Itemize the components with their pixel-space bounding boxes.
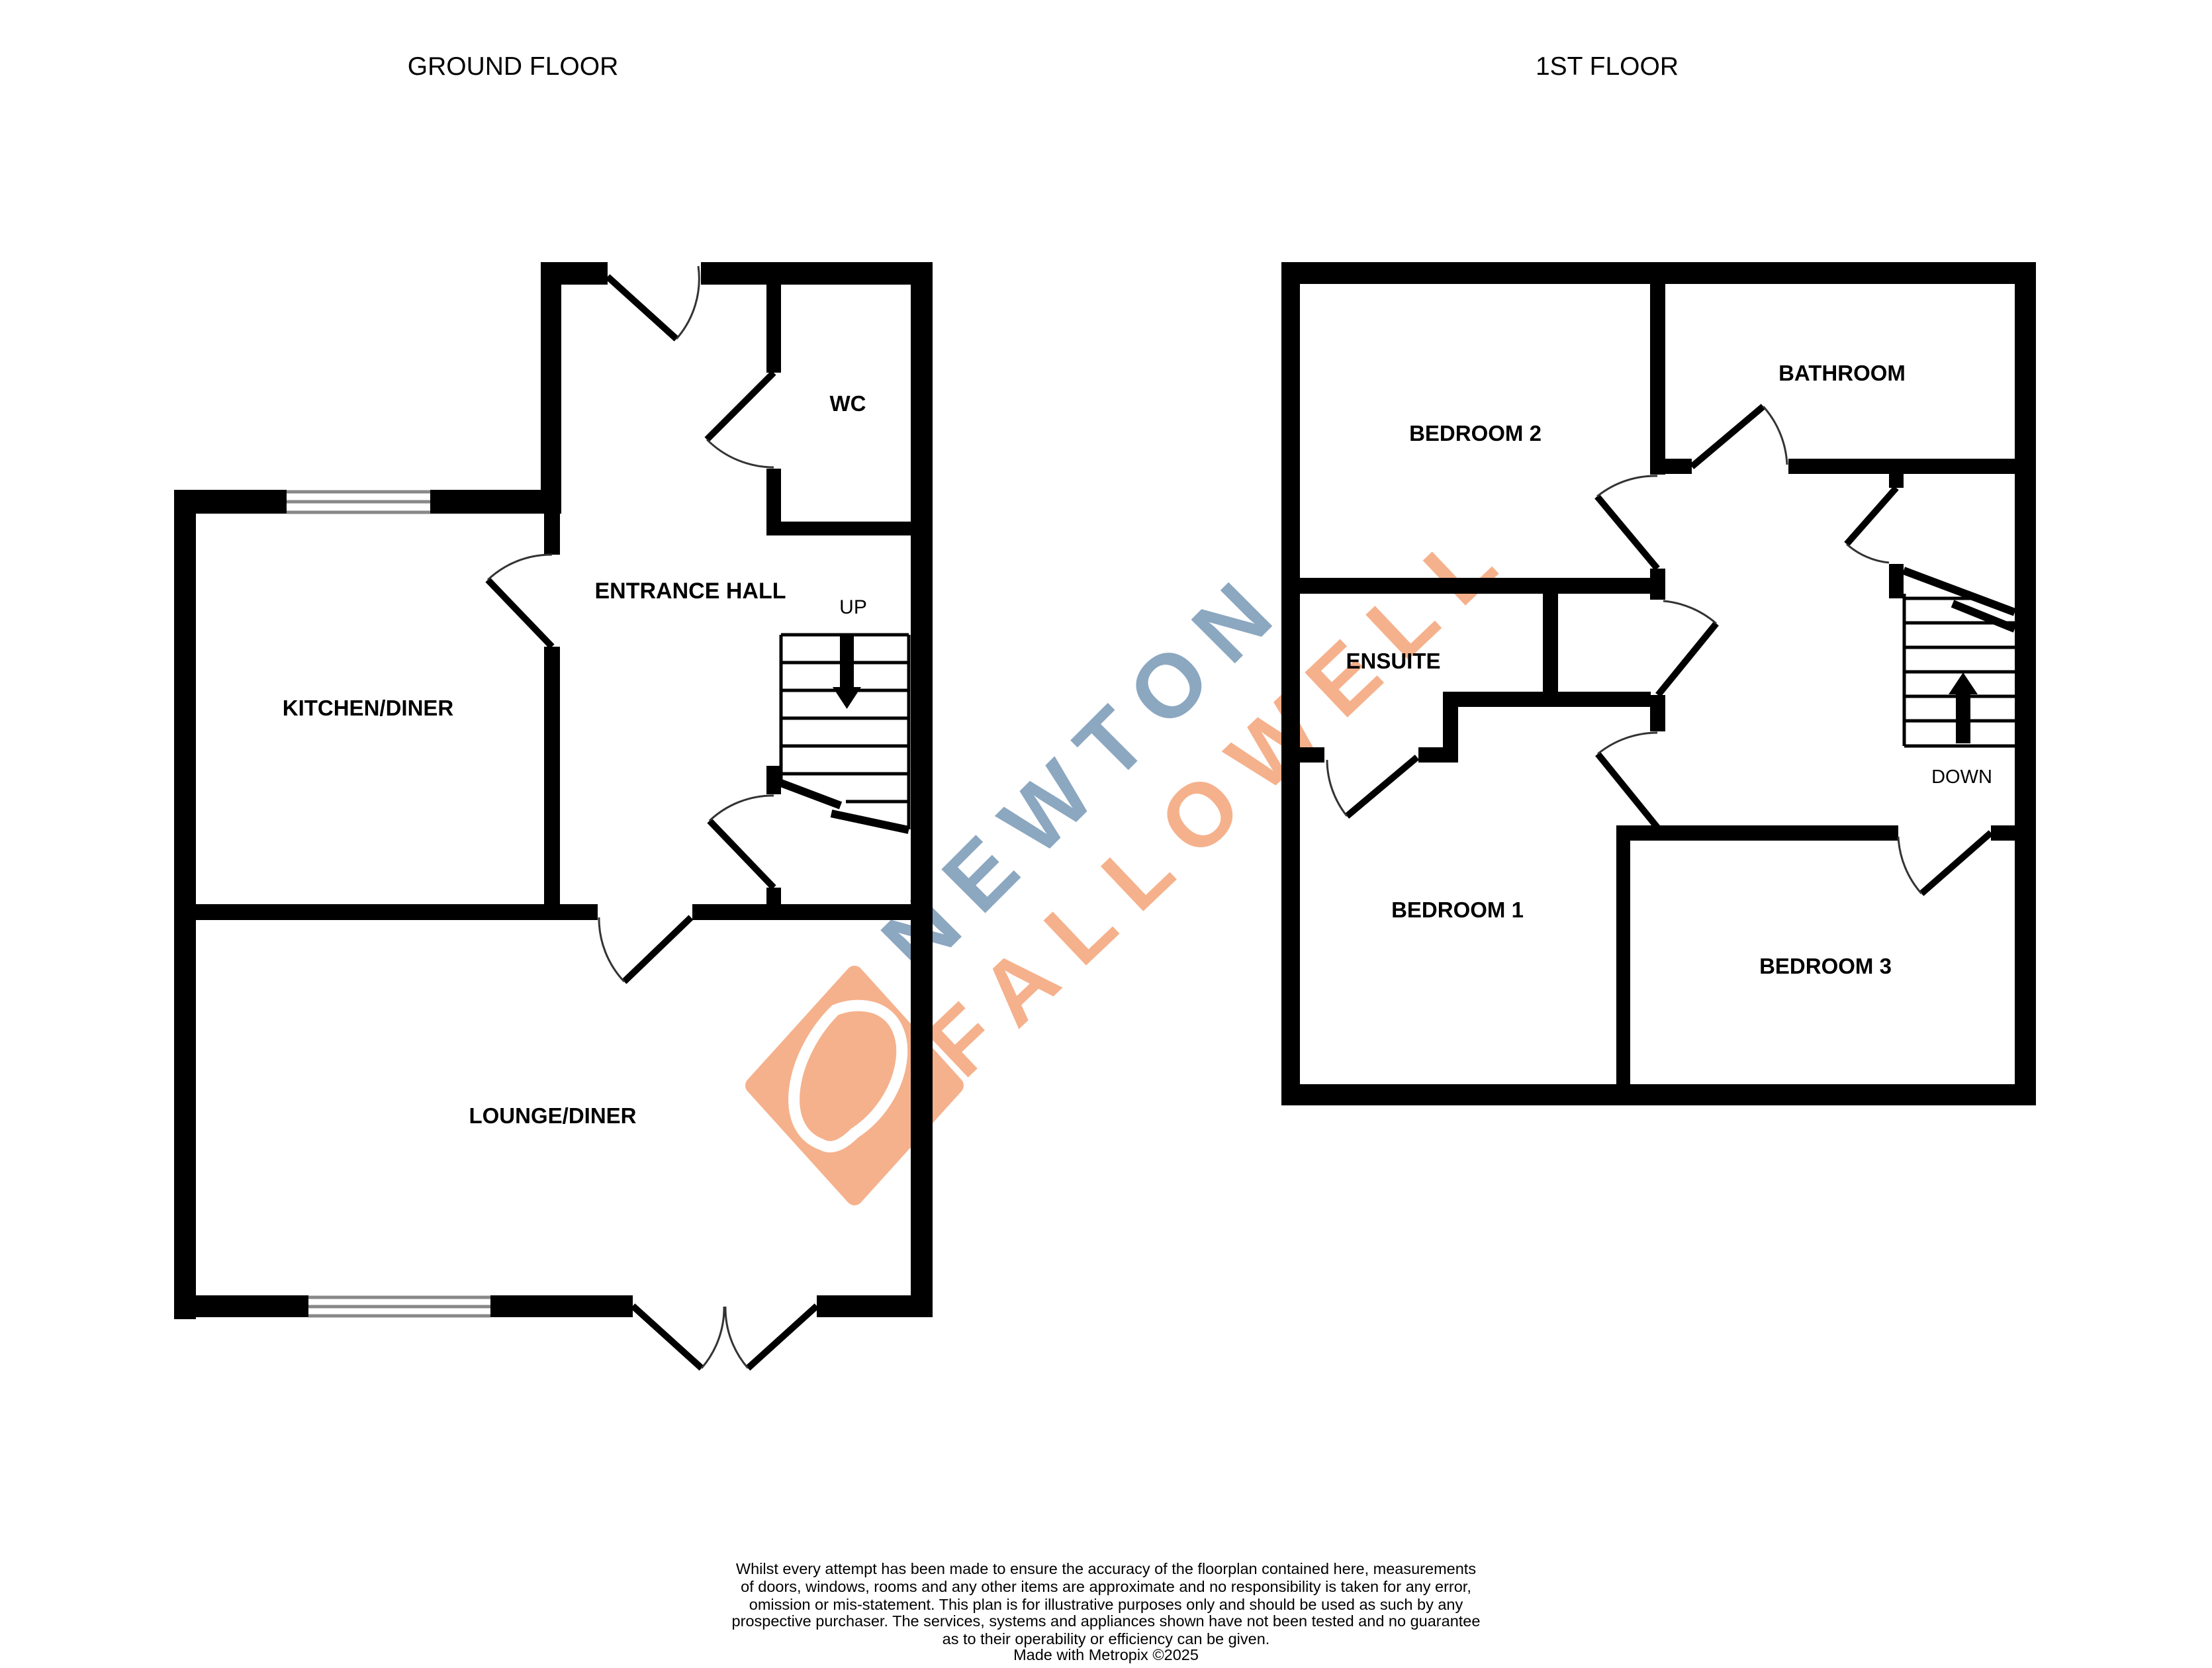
svg-text:of doors, windows, rooms and a: of doors, windows, rooms and any other i… [741, 1578, 1471, 1595]
svg-text:ENSUITE: ENSUITE [1346, 649, 1440, 673]
svg-text:1ST FLOOR: 1ST FLOOR [1536, 52, 1679, 81]
svg-text:KITCHEN/DINER: KITCHEN/DINER [283, 696, 454, 720]
svg-text:as to their operability or eff: as to their operability or efficiency ca… [943, 1630, 1270, 1647]
svg-text:BEDROOM 3: BEDROOM 3 [1759, 954, 1892, 978]
svg-text:DOWN: DOWN [1931, 766, 1992, 788]
svg-text:Whilst every attempt has been: Whilst every attempt has been made to en… [736, 1560, 1476, 1577]
svg-text:BATHROOM: BATHROOM [1778, 361, 1906, 385]
svg-text:WC: WC [830, 391, 866, 416]
svg-text:UP: UP [839, 596, 867, 618]
svg-text:LOUNGE/DINER: LOUNGE/DINER [469, 1103, 636, 1128]
svg-text:GROUND FLOOR: GROUND FLOOR [408, 52, 619, 81]
svg-text:BEDROOM 2: BEDROOM 2 [1409, 421, 1542, 445]
svg-text:prospective purchaser. The ser: prospective purchaser. The services, sys… [732, 1612, 1481, 1630]
svg-text:Made with Metropix ©2025: Made with Metropix ©2025 [1013, 1646, 1199, 1663]
svg-text:omission or mis-statement. Thi: omission or mis-statement. This plan is … [749, 1596, 1463, 1613]
svg-text:BEDROOM 1: BEDROOM 1 [1391, 898, 1524, 922]
svg-text:ENTRANCE HALL: ENTRANCE HALL [595, 579, 786, 604]
